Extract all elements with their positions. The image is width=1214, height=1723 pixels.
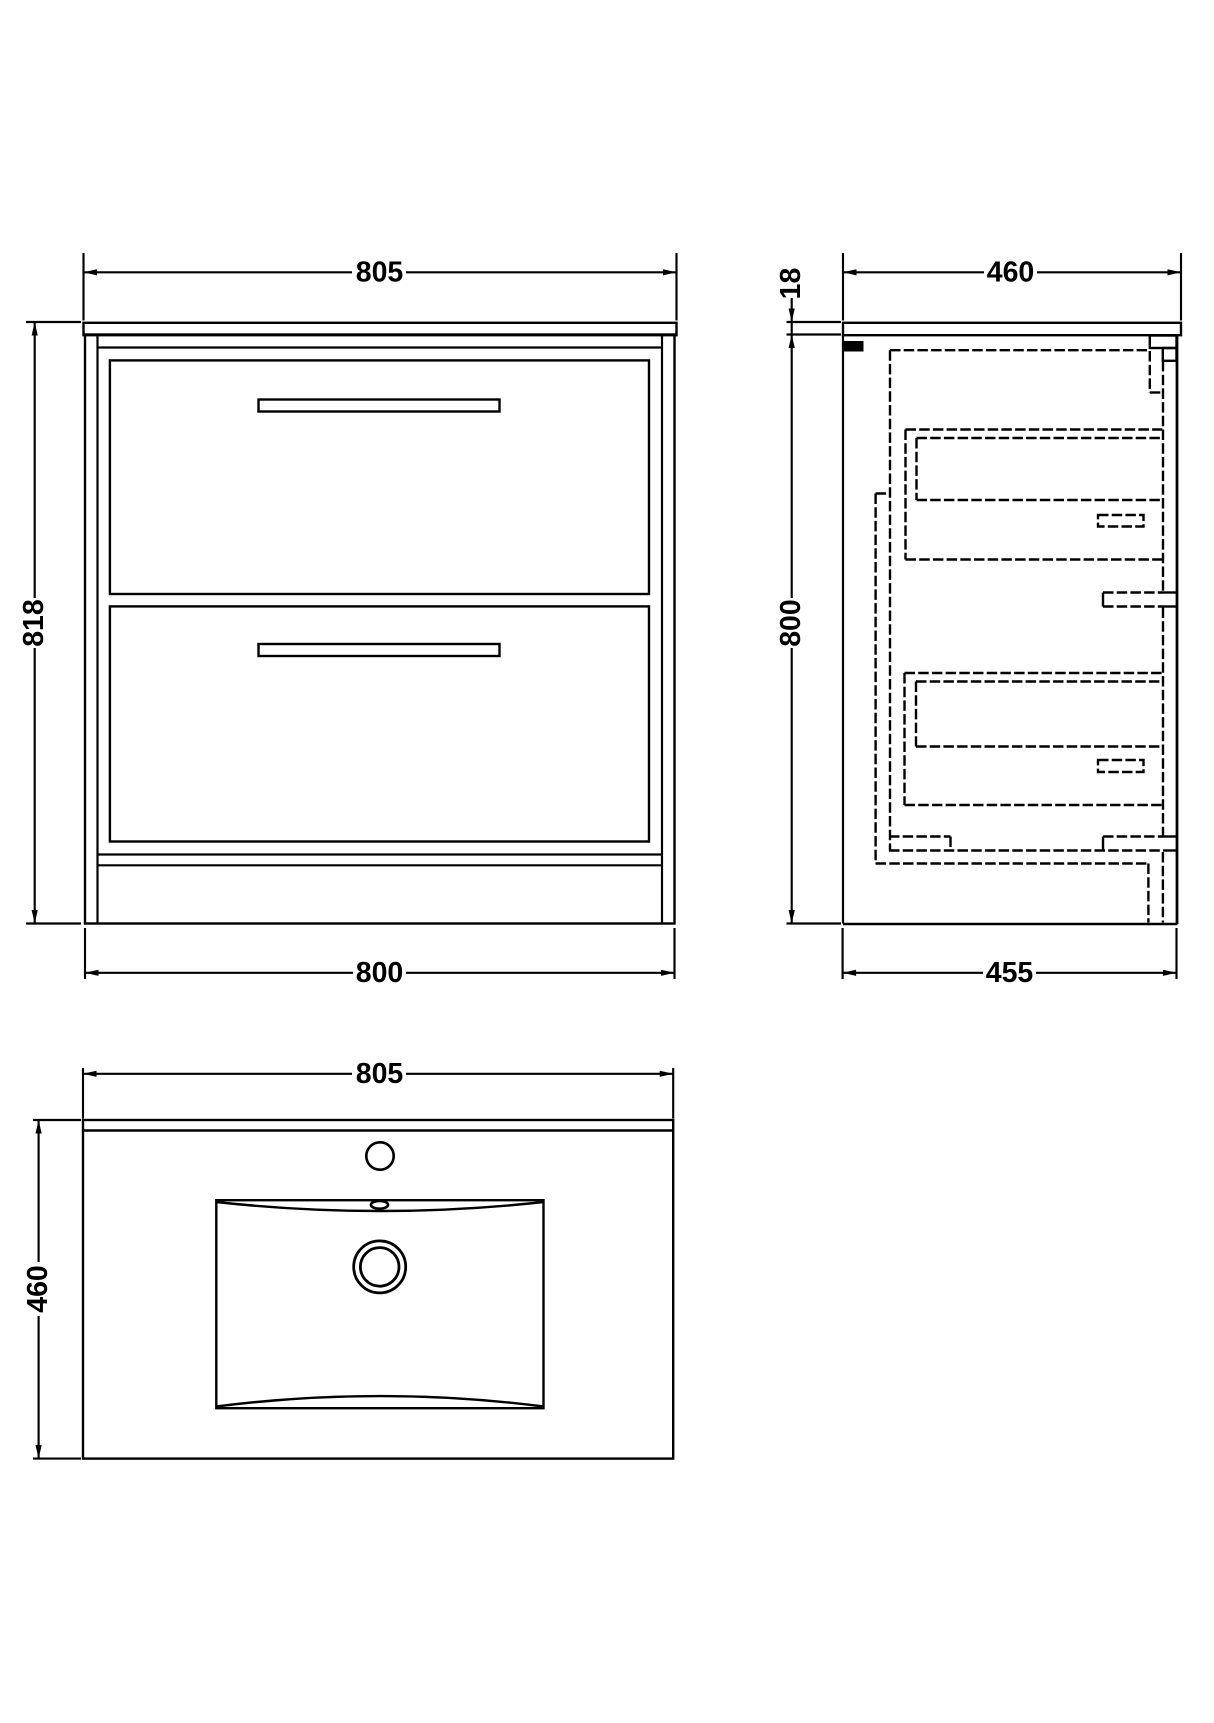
svg-text:818: 818: [18, 599, 50, 647]
svg-text:800: 800: [775, 599, 807, 647]
svg-text:460: 460: [22, 1265, 54, 1313]
svg-text:460: 460: [987, 256, 1035, 288]
svg-text:805: 805: [356, 256, 404, 288]
svg-text:455: 455: [986, 957, 1034, 989]
svg-text:18: 18: [775, 268, 807, 300]
svg-text:800: 800: [356, 957, 404, 989]
svg-text:805: 805: [356, 1058, 404, 1090]
